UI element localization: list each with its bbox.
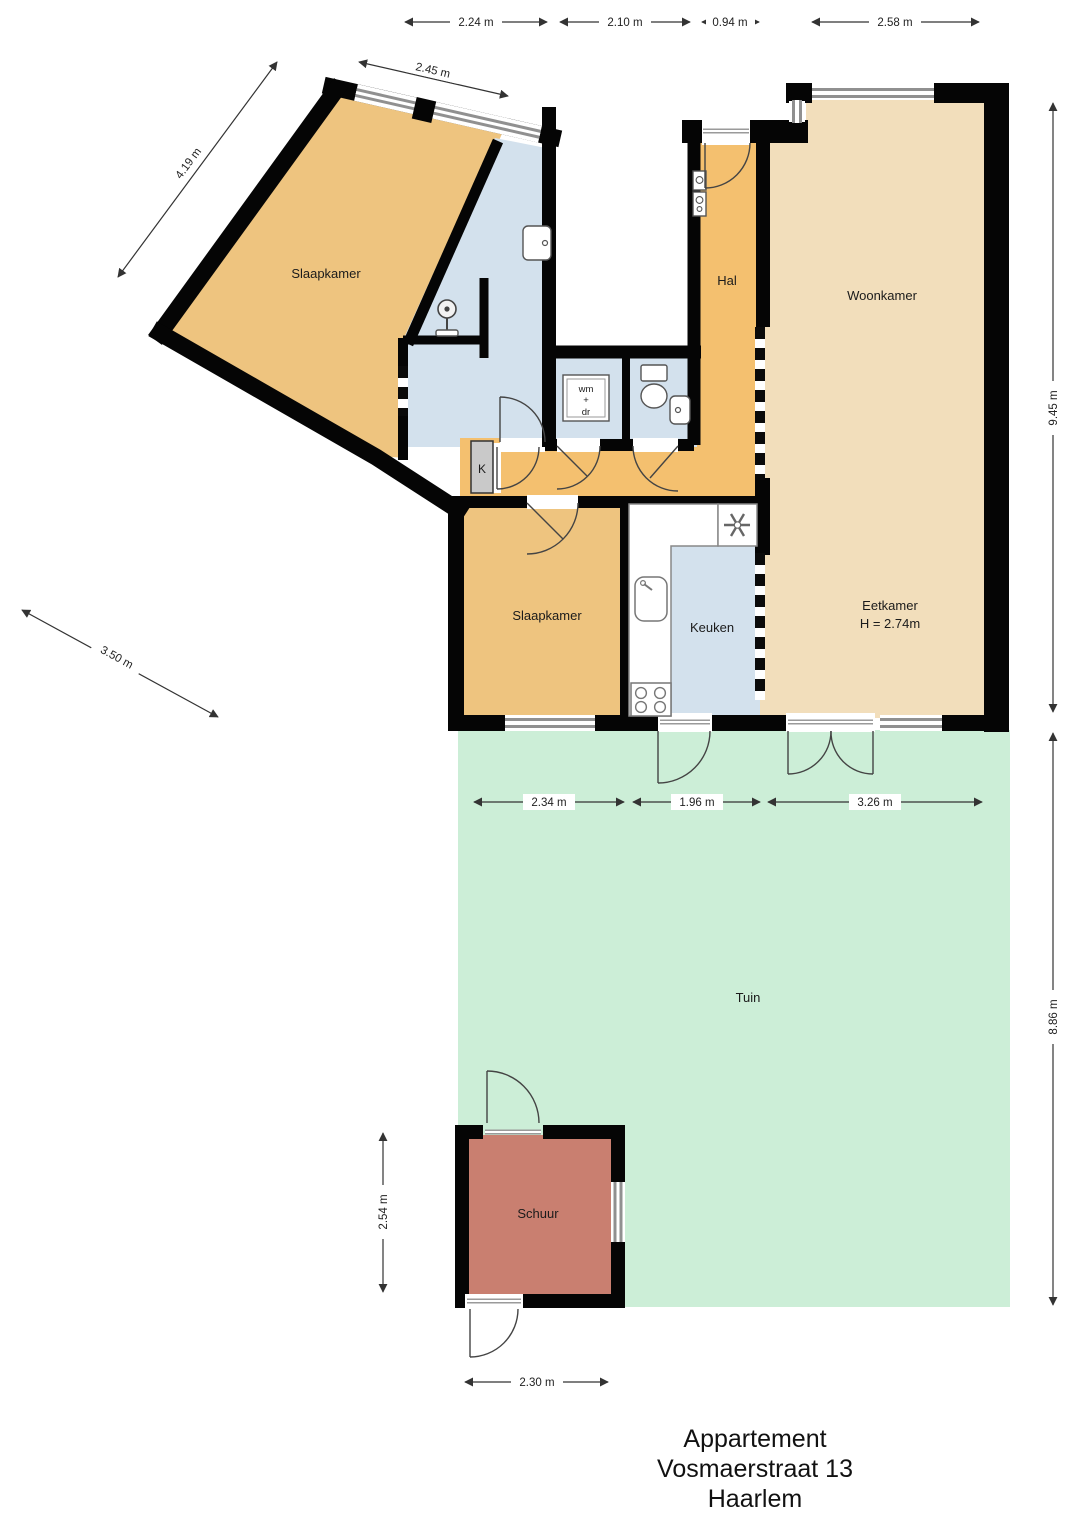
dim-top-1: 2.24 m [405,14,547,30]
plus-label: + [583,395,589,406]
floorplan-page: Schuur [0,0,1080,1527]
dr-label: dr [582,407,590,418]
notch-window [789,100,805,123]
svg-text:0.94 m: 0.94 m [712,17,747,29]
schuur-label: Schuur [517,1206,559,1221]
dim-254: 2.54 m [375,1133,391,1292]
svg-text:3.26 m: 3.26 m [857,797,892,809]
hal-meter-boxes [693,171,706,216]
woonkamer-label: Woonkamer [847,288,918,303]
dim-230: 2.30 m [465,1374,608,1390]
dim-350: 3.50 m [22,610,218,717]
title-line-3: Haarlem [708,1485,802,1513]
svg-text:1.96 m: 1.96 m [679,797,714,809]
keuken-label: Keuken [690,620,734,635]
toilet-sink [670,396,690,424]
floorplan-canvas: Schuur [0,0,1080,1527]
svg-text:9.45 m: 9.45 m [1048,390,1060,425]
tuin-label: Tuin [736,990,761,1005]
svg-text:2.24 m: 2.24 m [458,17,493,29]
slaapkamer2-label: Slaapkamer [512,608,582,623]
plan-title: Appartement Vosmaerstraat 13 Haarlem [657,1425,853,1513]
wm-label: wm [578,384,594,395]
svg-text:2.34 m: 2.34 m [531,797,566,809]
schuur-door-bottom [465,1294,523,1357]
stove [631,683,671,716]
svg-text:2.30 m: 2.30 m [519,1377,554,1389]
eetkamer-height-label: H = 2.74m [860,616,920,631]
kitchen-sink [635,577,667,621]
title-line-1: Appartement [683,1425,826,1453]
closet-k-label: K [478,462,486,476]
svg-text:2.10 m: 2.10 m [607,17,642,29]
hal-label: Hal [717,273,737,288]
dim-top-2: 2.10 m [560,14,690,30]
eetkamer-label: Eetkamer [862,598,918,613]
title-line-2: Vosmaerstraat 13 [657,1455,853,1483]
dim-945: 9.45 m [1045,103,1061,712]
dim-886: 8.86 m [1045,733,1061,1305]
slaapkamer1-label: Slaapkamer [291,266,361,281]
svg-text:8.86 m: 8.86 m [1048,999,1060,1034]
svg-text:2.54 m: 2.54 m [378,1194,390,1229]
bathroom-sink [523,226,551,260]
dim-top-3: 0.94 m [702,14,759,30]
dim-top-4: 2.58 m [812,14,979,30]
svg-text:2.58 m: 2.58 m [877,17,912,29]
